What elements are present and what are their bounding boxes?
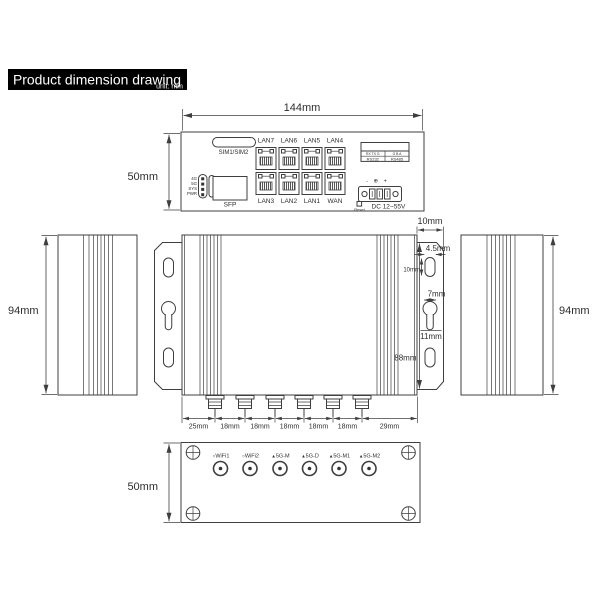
antenna-connector bbox=[353, 396, 371, 417]
dim-4p5mm-label: 4.5mm bbox=[426, 244, 451, 253]
antenna-jack-icon bbox=[332, 462, 346, 476]
antenna-jack-icon bbox=[214, 462, 228, 476]
sfp-label: SFP bbox=[224, 202, 237, 209]
main-view: 10mm 4.5mm 10mm 7mm 11mm 88mm bbox=[155, 216, 451, 431]
antenna-connector bbox=[206, 396, 224, 417]
polarity-label: - ⊕ + bbox=[366, 179, 389, 185]
dim-width-label: 144mm bbox=[284, 102, 321, 114]
rj45-port bbox=[302, 173, 322, 195]
dimension-drawing-svg: Product dimension drawing unit: mm 144mm… bbox=[0, 0, 600, 600]
screw-icon bbox=[402, 446, 416, 460]
port-label-lan5: LAN5 bbox=[304, 138, 321, 145]
serial-rs232-label: RS232 bbox=[367, 156, 380, 161]
antenna-connector bbox=[236, 396, 254, 417]
sim-label: SIM1/SIM2 bbox=[219, 150, 249, 156]
screw-slot bbox=[164, 348, 174, 367]
bottom-view: 50mm ○WiFi1 ○WiFi2 ▲5G-M ▲5G-D ▲5G-M1 ▲5… bbox=[127, 443, 420, 523]
top-view: 144mm 50mm SIM1/SIM2 4G 5G SYS PWR bbox=[127, 102, 424, 212]
dim-10mm-slot-label: 10mm bbox=[403, 268, 420, 274]
rj45-port bbox=[325, 148, 345, 170]
spacing-label: 18mm bbox=[309, 424, 329, 431]
reset-button-icon bbox=[357, 202, 362, 207]
dim-height-94-right: 94mm bbox=[544, 236, 590, 395]
dim-height-50-top: 50mm bbox=[127, 134, 180, 211]
antenna-connector bbox=[324, 396, 342, 417]
rj45-port bbox=[302, 148, 322, 170]
screw-icon bbox=[186, 446, 200, 460]
antenna-jack-icon bbox=[243, 462, 257, 476]
spacing-label: 18mm bbox=[250, 424, 270, 431]
antenna-jack-icon bbox=[362, 462, 376, 476]
screw-slot bbox=[164, 258, 174, 277]
title-bar: Product dimension drawing unit: mm bbox=[8, 69, 187, 91]
antenna-connector bbox=[266, 396, 284, 417]
spacing-label: 29mm bbox=[380, 424, 400, 431]
rj45-port bbox=[256, 148, 276, 170]
port-label-lan1: LAN1 bbox=[304, 198, 321, 205]
side-view-left: 94mm bbox=[8, 235, 137, 395]
screw-icon bbox=[402, 507, 416, 521]
dim-7mm-label: 7mm bbox=[428, 290, 446, 299]
dim-11mm-label: 11mm bbox=[420, 332, 442, 341]
screw-slot bbox=[425, 258, 435, 277]
dim-10mm-label: 10mm bbox=[417, 216, 442, 226]
port-label-wan: WAN bbox=[328, 198, 343, 205]
spacing-label: 18mm bbox=[338, 424, 358, 431]
terminal-screw-icon bbox=[393, 191, 398, 196]
antenna-label-wifi2: ○WiFi2 bbox=[242, 454, 259, 460]
rj45-port bbox=[325, 173, 345, 195]
spacing-label: 18mm bbox=[220, 424, 240, 431]
rj45-port bbox=[279, 173, 299, 195]
antenna-connector bbox=[295, 396, 313, 417]
port-label-lan7: LAN7 bbox=[258, 138, 275, 145]
port-label-lan6: LAN6 bbox=[281, 138, 298, 145]
led-indicators: 4G 5G SYS PWR bbox=[187, 175, 215, 199]
dim-width-144: 144mm bbox=[183, 102, 423, 131]
port-label-lan3: LAN3 bbox=[258, 198, 275, 205]
dim-keyhole-dia-7: 7mm bbox=[424, 290, 446, 301]
serial-terminal: RX TX G G B A RS232 RS485 bbox=[361, 143, 409, 162]
antenna-jack-icon bbox=[273, 462, 287, 476]
reset-label: Reset bbox=[354, 207, 365, 212]
side-view-right: 94mm bbox=[461, 235, 590, 395]
dc-input-label: DC 12~55V bbox=[372, 204, 406, 211]
led-label-pwr: PWR bbox=[187, 191, 197, 196]
dim-94-left-label: 94mm bbox=[8, 305, 39, 317]
screw-slot bbox=[425, 348, 435, 367]
antenna-label-wifi1: ○WiFi1 bbox=[213, 454, 230, 460]
dim-height-50-bottom: 50mm bbox=[127, 443, 180, 523]
screw-icon bbox=[186, 507, 200, 521]
dim-50mm-bottom-label: 50mm bbox=[127, 481, 158, 493]
terminal-screw-icon bbox=[362, 191, 367, 196]
unit-label: unit: mm bbox=[156, 84, 183, 91]
dimension-drawing-page: Product dimension drawing unit: mm 144mm… bbox=[0, 0, 600, 600]
port-label-lan4: LAN4 bbox=[327, 138, 344, 145]
dim-88mm-label: 88mm bbox=[394, 354, 417, 363]
antenna-connectors bbox=[206, 396, 371, 417]
dim-height-94-left: 94mm bbox=[8, 236, 57, 395]
spacing-label: 18mm bbox=[280, 424, 300, 431]
side-right-outline bbox=[461, 235, 543, 395]
spacing-label: 25mm bbox=[189, 424, 209, 431]
antenna-jack-icon bbox=[303, 462, 317, 476]
dim-height-label: 50mm bbox=[127, 171, 158, 183]
rj45-port bbox=[279, 148, 299, 170]
rj45-port bbox=[256, 173, 276, 195]
dim-keyhole-len-11: 11mm bbox=[420, 331, 442, 342]
port-label-lan2: LAN2 bbox=[281, 198, 298, 205]
dim-94-right-label: 94mm bbox=[559, 305, 590, 317]
serial-rs485-label: RS485 bbox=[391, 156, 404, 161]
